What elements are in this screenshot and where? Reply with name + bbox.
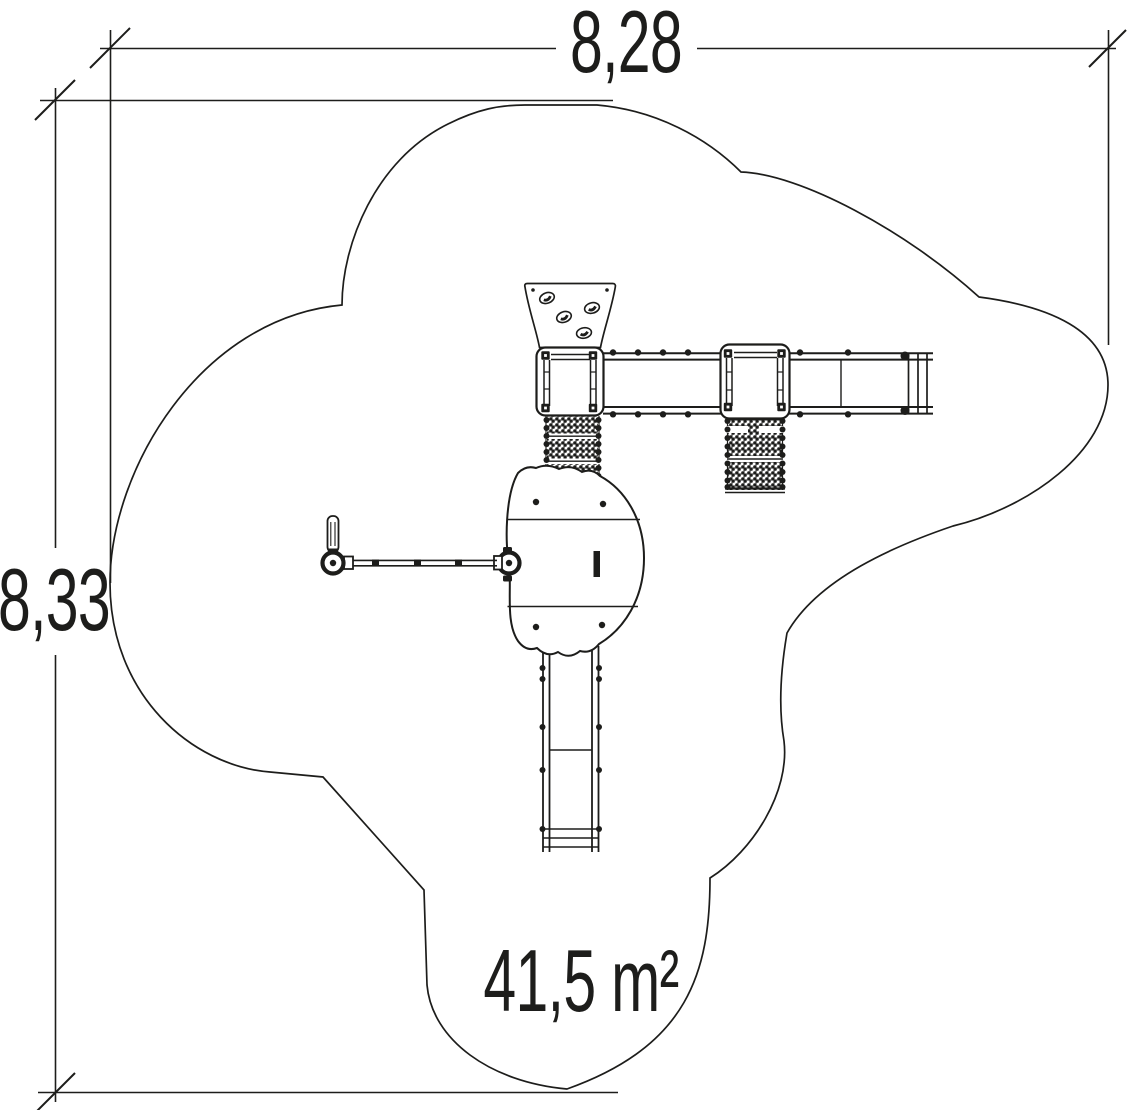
tower-platform-1 — [537, 348, 604, 416]
climbing-wall — [525, 284, 616, 348]
climbing-holds — [538, 291, 600, 340]
bridge-2 — [789, 349, 933, 417]
arm-pivot-joint — [323, 553, 344, 574]
width-dimension-label: 8,28 — [570, 0, 682, 86]
area-label: 41,5 m² — [483, 937, 678, 1025]
net-ramp-2 — [725, 418, 786, 493]
arm-pivot-post — [328, 516, 339, 555]
slide — [540, 646, 603, 852]
tower-platform-2 — [721, 345, 790, 419]
bridge-2-entry-rungs — [909, 354, 928, 413]
arm-collar — [494, 556, 502, 570]
pod-marker-bar — [594, 551, 601, 577]
height-dimension-label: 8,33 — [0, 556, 110, 644]
wall-corner-bolt — [531, 288, 535, 292]
activity-pod — [499, 466, 645, 656]
bridge-1 — [603, 349, 723, 417]
wall-corner-bolt — [605, 288, 609, 292]
swing-arm — [323, 516, 503, 574]
playground-plan-canvas: 8,28 8,33 41,5 m² — [0, 0, 1127, 1110]
